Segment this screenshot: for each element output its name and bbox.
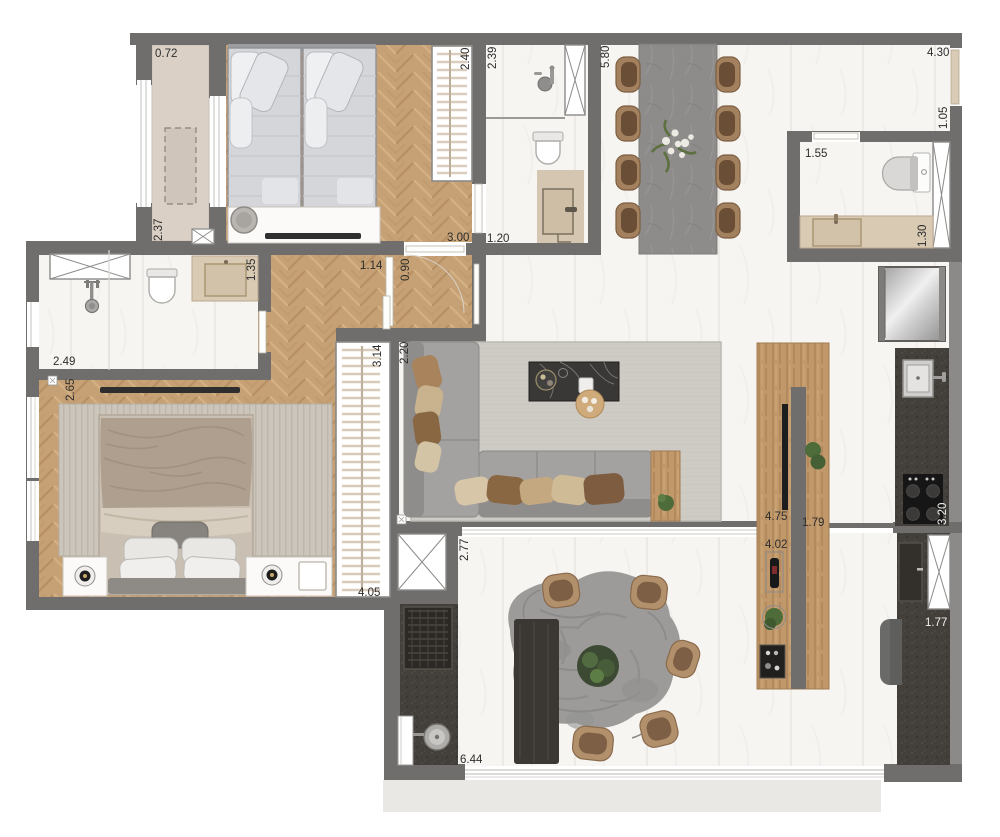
- svg-text:1.55: 1.55: [805, 148, 827, 160]
- svg-text:1.77: 1.77: [925, 617, 947, 629]
- svg-text:4.30: 4.30: [927, 47, 949, 59]
- svg-text:4.75: 4.75: [765, 511, 787, 523]
- svg-text:1.20: 1.20: [487, 233, 509, 245]
- svg-text:2.39: 2.39: [487, 47, 499, 69]
- svg-text:2.20: 2.20: [399, 342, 411, 364]
- svg-text:4.02: 4.02: [765, 539, 787, 551]
- svg-text:2.77: 2.77: [459, 539, 471, 561]
- svg-text:1.14: 1.14: [360, 260, 383, 272]
- svg-text:3.00: 3.00: [447, 232, 469, 244]
- svg-text:1.05: 1.05: [938, 107, 950, 129]
- svg-text:0.72: 0.72: [155, 48, 177, 60]
- svg-text:3.20: 3.20: [937, 503, 949, 525]
- svg-text:2.49: 2.49: [53, 356, 75, 368]
- svg-text:6.44: 6.44: [460, 754, 483, 766]
- svg-text:5.80: 5.80: [600, 46, 612, 68]
- svg-text:0.90: 0.90: [400, 259, 412, 281]
- svg-text:2.65: 2.65: [65, 379, 77, 401]
- svg-text:2.40: 2.40: [460, 48, 472, 70]
- svg-text:3.14: 3.14: [372, 344, 384, 367]
- svg-text:1.79: 1.79: [802, 517, 824, 529]
- svg-text:1.30: 1.30: [917, 225, 929, 247]
- svg-text:1.35: 1.35: [246, 259, 258, 281]
- svg-text:4.05: 4.05: [358, 587, 380, 599]
- svg-text:2.37: 2.37: [153, 219, 165, 241]
